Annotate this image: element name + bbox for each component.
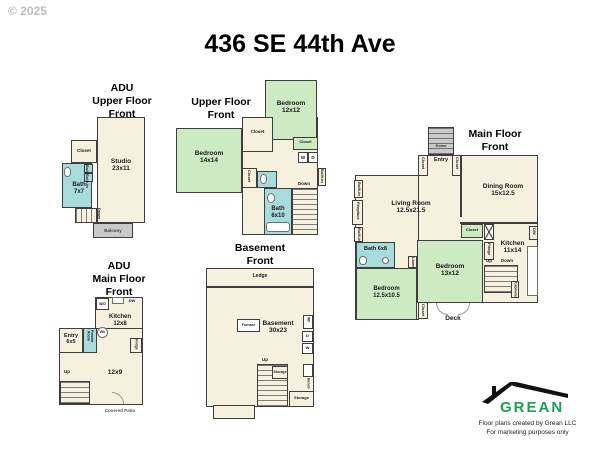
powder-room-label: Powder Room — [86, 330, 93, 343]
stairs-down-label: Down — [97, 208, 101, 219]
storage-label: Storage — [289, 396, 314, 401]
cabinets-label: Cabinets — [513, 282, 517, 297]
linen-label: Linen — [411, 257, 415, 268]
toilet-icon — [260, 174, 267, 184]
built-in-label: Built-in — [320, 169, 324, 183]
closet-label: Closet — [461, 228, 483, 233]
entry-down-label: Down — [428, 144, 454, 149]
sink-icon — [382, 257, 389, 264]
dining-room-label: Dining Room 15x12.5 — [470, 183, 536, 198]
washer-label: W — [298, 155, 308, 160]
page-title: 436 SE 44th Ave — [0, 30, 600, 59]
adu-entry-label: Entry 6x5 — [59, 333, 83, 346]
fireplace-label: Fireplace — [356, 202, 360, 220]
storage-label: Storage — [272, 370, 288, 374]
closet-label: Closet — [71, 148, 97, 153]
toilet-icon — [64, 167, 71, 177]
bath-label: Bath 7x7 — [66, 182, 92, 196]
dishwasher-label: DW — [532, 228, 536, 235]
bedroom-13x12-label: Bedroom 13x12 — [421, 263, 479, 278]
deck-label: Deck — [433, 315, 473, 322]
counter — [527, 246, 538, 296]
basement-step-out — [213, 405, 255, 419]
bath-6x10-label: Bath 6x10 — [264, 206, 292, 220]
door-arc — [458, 303, 470, 315]
adu-room-12x9-label: 12x9 — [95, 369, 135, 376]
copyright-watermark: © 2025 — [8, 4, 47, 18]
dishwasher-label: DW — [125, 299, 139, 304]
credit-text: Floor plans created by Grean LLC For mar… — [465, 420, 590, 438]
washer-label: W — [302, 346, 313, 351]
toilet-icon — [359, 256, 367, 265]
entry-stairs-down — [428, 127, 454, 155]
closet-room — [242, 117, 273, 152]
fridge-label: Fridge — [134, 339, 138, 350]
closet-label: Closet — [421, 157, 425, 169]
main-plan-title: Main Floor Front — [450, 128, 540, 154]
adu-main-plan-title: ADU Main Floor Front — [78, 260, 160, 299]
closet-label: Closet — [247, 170, 251, 182]
built-in-label: Built-in — [357, 182, 361, 196]
floor-plan-sheet: { "copyright": "© 2025", "title": "436 S… — [0, 0, 600, 450]
basement-label: Basement 30x23 — [255, 320, 301, 335]
kitchen-sink-icon — [112, 297, 124, 304]
stairs-down — [292, 188, 318, 235]
stairs-down-label: Down — [291, 181, 317, 186]
stairs-up — [60, 381, 90, 404]
washer-dryer-label: W/D — [96, 302, 109, 306]
stairs-up-label: Up — [258, 357, 272, 362]
adu-upper-plan-title: ADU Upper Floor Front — [62, 82, 182, 121]
closet-label: Closet — [242, 129, 273, 134]
stairs-down-label: Down — [498, 258, 516, 263]
bath-6x8-label: Bath 6x8 — [356, 246, 395, 252]
adu-kitchen-label: Kitchen 12x8 — [100, 314, 140, 328]
living-room-label: Living Room 12.5x21.5 — [378, 200, 444, 215]
built-in-label: Built-in — [357, 228, 361, 242]
dryer-label: D — [308, 155, 318, 160]
bedroom-12x12-label: Bedroom 12x12 — [267, 100, 315, 115]
pantry-x-box — [484, 224, 494, 240]
water-heater-label: Wh — [97, 330, 108, 334]
studio-label: Studio 23x11 — [99, 158, 143, 173]
bedroom-14x14-label: Bedroom 14x14 — [180, 150, 238, 165]
bedroom-12-5x10-5-label: Bedroom 12.5x10.5 — [358, 286, 415, 300]
closet-label: Closet — [455, 157, 459, 169]
closet-label: Closet — [421, 304, 425, 316]
sink-icon — [267, 193, 275, 203]
ledge-label: Ledge — [206, 274, 314, 280]
stairs-down — [75, 208, 97, 223]
bench-box — [303, 364, 313, 377]
stairs-up-label: Up — [482, 258, 496, 263]
closet-label: Closet — [293, 140, 318, 145]
stairs-up-label: Up — [60, 369, 74, 374]
water-heater-label: Wh — [306, 317, 310, 322]
basement-plan-title: Basement Front — [225, 242, 295, 268]
brand-name: GREAN — [500, 399, 564, 416]
door-arc — [436, 303, 448, 315]
balcony-label: Balcony — [93, 228, 133, 233]
covered-patio-label: Covered Patio — [80, 408, 160, 413]
living-dining-wall — [460, 155, 462, 217]
dryer-label: D — [302, 334, 313, 339]
tub-icon — [266, 222, 290, 232]
bench-label: Bench — [306, 378, 310, 389]
